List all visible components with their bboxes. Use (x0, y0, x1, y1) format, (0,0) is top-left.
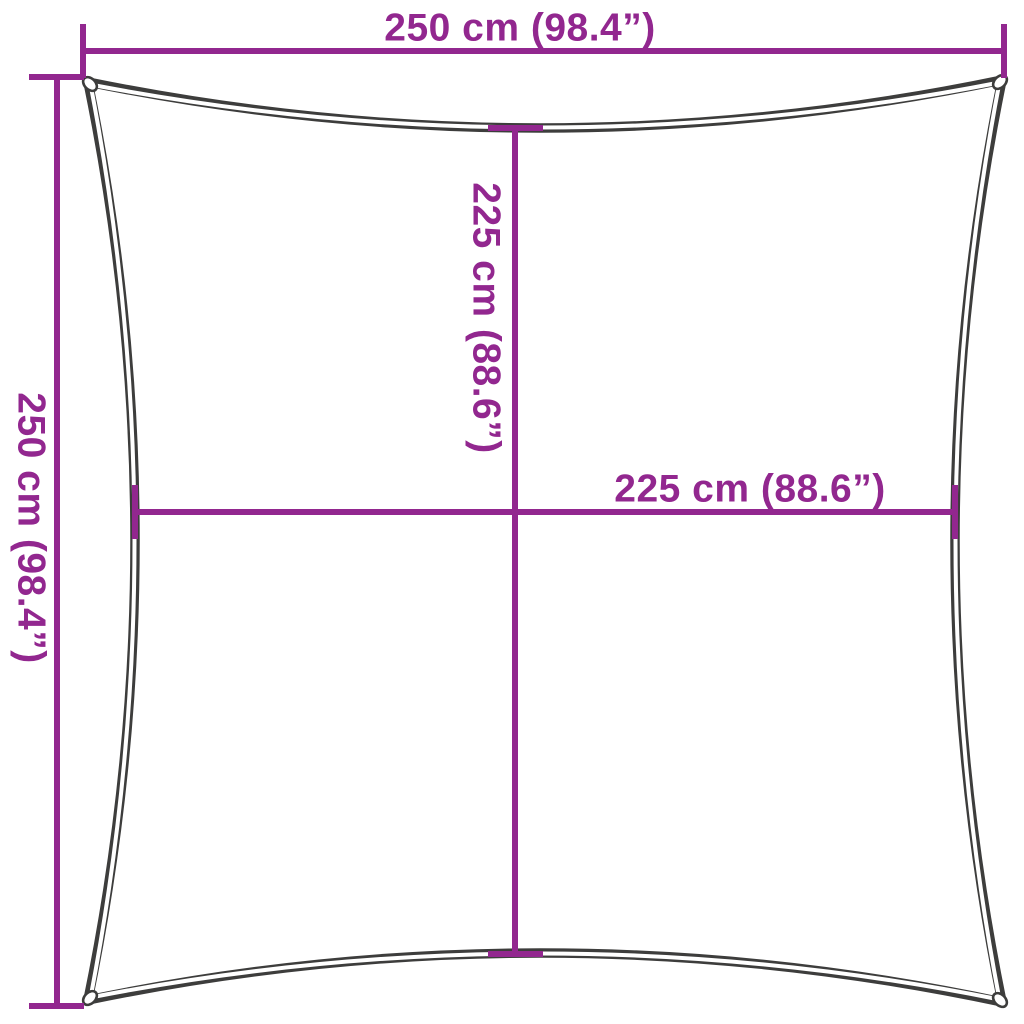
sail-outline (88, 80, 1002, 1002)
dimension-label-inner-horizontal: 225 cm (88.6”) (614, 470, 886, 509)
sail-edge-left-inner (91, 87, 135, 995)
dimension-label-left: 250 cm (98.4”) (12, 392, 51, 664)
dimension-label-top: 250 cm (98.4”) (384, 9, 656, 48)
sail-edge-top-inner (93, 83, 997, 128)
corner-loop-bottom-right (990, 990, 1009, 1009)
sail-corner-loops (80, 72, 1009, 1009)
sail-outline-inner (91, 83, 999, 999)
dimension-label-inner-vertical: 225 cm (88.6”) (467, 182, 506, 454)
dimension-diagram: 250 cm (98.4”) 250 cm (98.4”) 225 cm (88… (0, 0, 1024, 1024)
sail-edge-right-inner (956, 85, 1000, 997)
sail-edge-bottom-inner (93, 953, 997, 999)
diagram-svg (0, 0, 1024, 1024)
dimension-lines (29, 24, 1004, 1006)
